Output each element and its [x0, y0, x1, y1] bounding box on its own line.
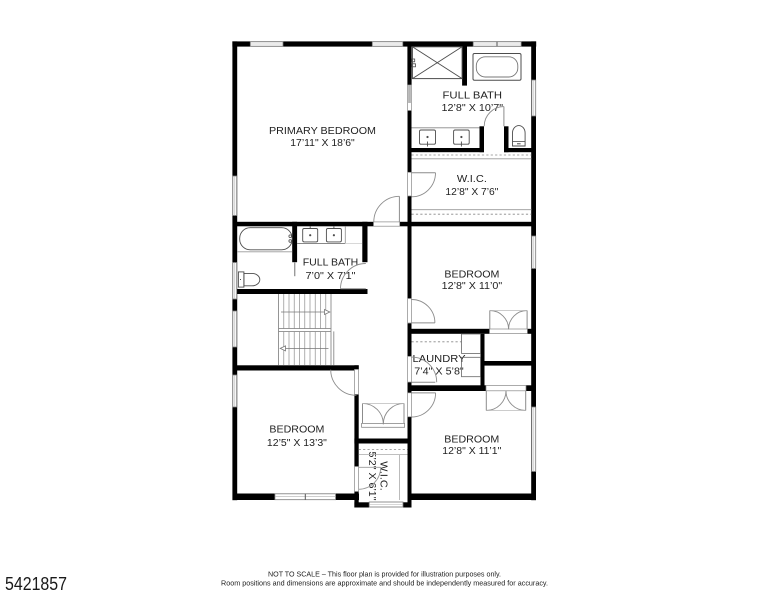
svg-text:BEDROOM: BEDROOM: [269, 425, 324, 436]
svg-text:NOT TO SCALE – This floor plan: NOT TO SCALE – This floor plan is provid…: [268, 571, 501, 578]
svg-text:FULL BATH: FULL BATH: [303, 258, 359, 269]
svg-text:FULL BATH: FULL BATH: [443, 91, 503, 102]
svg-text:LAUNDRY: LAUNDRY: [413, 354, 466, 365]
svg-text:17’11" X 18’6": 17’11" X 18’6": [290, 138, 355, 149]
svg-text:12’5" X 13’3": 12’5" X 13’3": [267, 438, 327, 449]
svg-text:5’2" X 6’1": 5’2" X 6’1": [366, 452, 377, 501]
svg-text:7’0" X 7’1": 7’0" X 7’1": [306, 271, 356, 282]
svg-text:12’8" X 7’6": 12’8" X 7’6": [445, 187, 498, 198]
svg-text:12’8" X 11’0": 12’8" X 11’0": [442, 281, 503, 292]
svg-text:12’8" X 10’7": 12’8" X 10’7": [442, 103, 504, 114]
svg-text:7’4" X 5’8": 7’4" X 5’8": [414, 367, 464, 378]
svg-text:Room positions and dimensions: Room positions and dimensions are approx…: [221, 580, 548, 587]
svg-text:12’8" X 11’1": 12’8" X 11’1": [442, 446, 501, 457]
svg-text:BEDROOM: BEDROOM: [444, 435, 499, 446]
svg-text:BEDROOM: BEDROOM: [444, 270, 499, 281]
svg-text:PRIMARY BEDROOM: PRIMARY BEDROOM: [269, 126, 376, 137]
svg-text:5421857: 5421857: [5, 573, 67, 594]
svg-text:W.I.C.: W.I.C.: [457, 174, 487, 185]
